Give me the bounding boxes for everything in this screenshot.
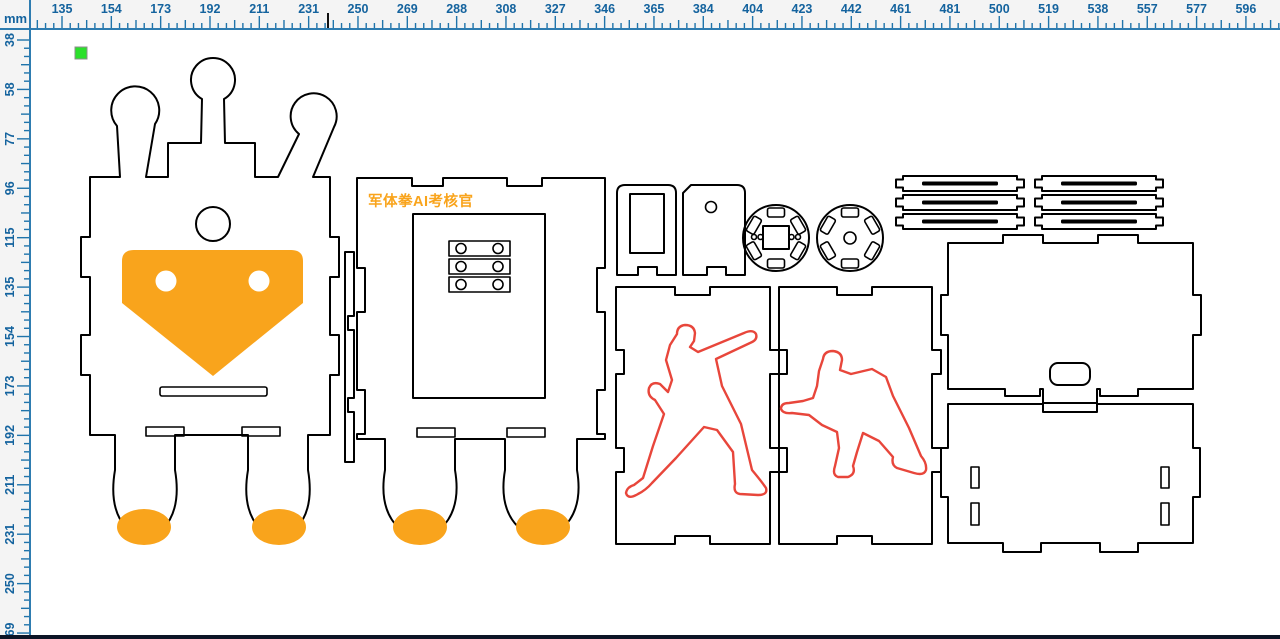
ruler-label: 442	[841, 2, 862, 16]
ruler-label: 77	[3, 132, 17, 146]
ruler-label: 231	[3, 524, 17, 545]
ruler-label: 557	[1137, 2, 1158, 16]
ruler-label: 38	[3, 33, 17, 47]
robot-eye-left	[156, 271, 177, 292]
ruler-label: 192	[200, 2, 221, 16]
ruler-label: 519	[1038, 2, 1059, 16]
ruler-label: 327	[545, 2, 566, 16]
ruler-label: 461	[890, 2, 911, 16]
laser-layout-app: { "app": { "view": "layout-canvas" }, "r…	[0, 0, 1280, 639]
ruler-label: 596	[1235, 2, 1256, 16]
ruler-label: 481	[940, 2, 961, 16]
selection-marker[interactable]	[75, 47, 87, 59]
ruler-label: 211	[3, 475, 17, 495]
robot-foot-pad-left	[117, 509, 171, 545]
ruler-label: 192	[3, 425, 17, 446]
ruler-label: 308	[496, 2, 517, 16]
ruler-label: 231	[298, 2, 319, 16]
ruler-label: 250	[348, 2, 369, 16]
ruler-label: 269	[3, 623, 17, 635]
ruler-label: 500	[989, 2, 1010, 16]
ruler-label: 577	[1186, 2, 1207, 16]
ruler-unit-label: mm	[4, 11, 27, 26]
back-foot-pad-right	[516, 509, 570, 545]
ruler-label: 538	[1088, 2, 1109, 16]
status-bar	[0, 635, 1280, 639]
ruler-label: 288	[446, 2, 467, 16]
ruler-label: 135	[52, 2, 73, 16]
ruler-label: 404	[742, 2, 763, 16]
robot-eye-right	[249, 271, 270, 292]
ruler-label: 346	[594, 2, 615, 16]
ruler-label: 173	[150, 2, 171, 16]
robot-foot-pad-right	[252, 509, 306, 545]
ruler-label: 154	[101, 2, 122, 16]
vertical-ruler: 38587796115135154173192211231250269	[0, 30, 31, 635]
ruler-label: 115	[3, 228, 17, 248]
ruler-label: 154	[3, 326, 17, 347]
ruler-label: 250	[3, 573, 17, 594]
ruler-label: 269	[397, 2, 418, 16]
ruler-label: 423	[792, 2, 813, 16]
ruler-label: 58	[3, 82, 17, 96]
ruler-label: 365	[644, 2, 665, 16]
ruler-label: 173	[3, 375, 17, 396]
ruler-label: 135	[3, 277, 17, 298]
ruler-label: 211	[249, 2, 269, 16]
design-canvas[interactable]: 军体拳AI考核官	[0, 0, 1280, 639]
horizontal-ruler: 1351541731922112312502692883083273463653…	[31, 0, 1280, 30]
ruler-corner: mm	[0, 0, 31, 30]
back-foot-pad-left	[393, 509, 447, 545]
ruler-label: 384	[693, 2, 714, 16]
engrave-label: 军体拳AI考核官	[368, 192, 474, 210]
ruler-label: 96	[3, 181, 17, 195]
